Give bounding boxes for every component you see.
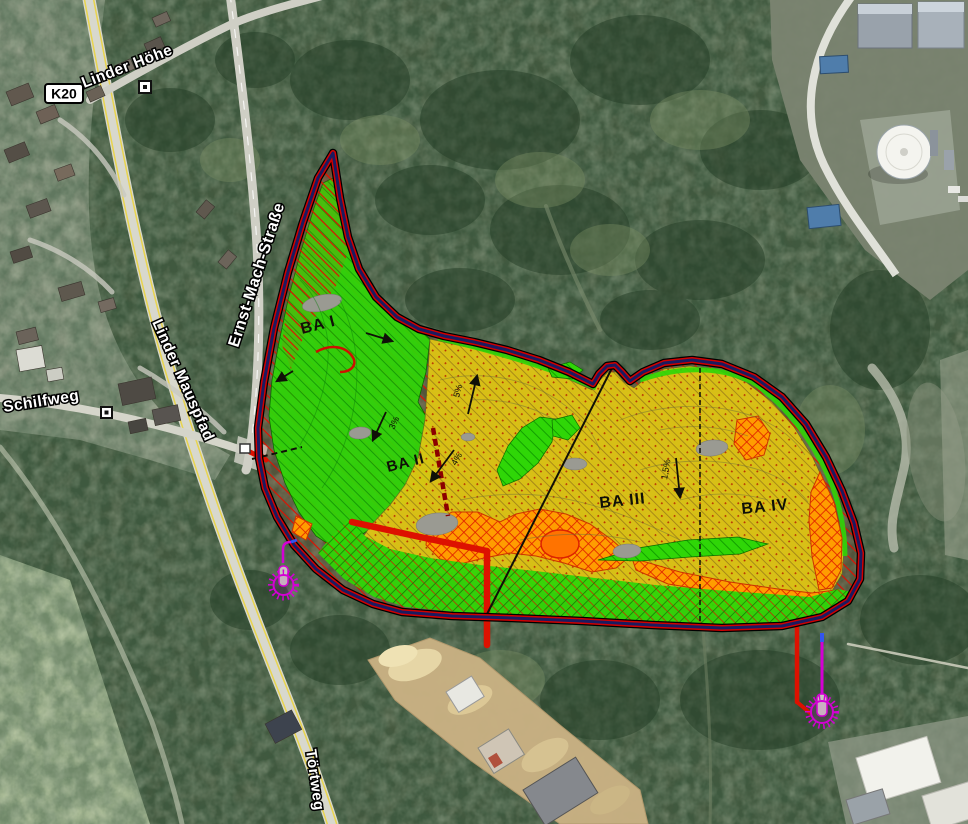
- k20-road-badge: K20: [45, 84, 83, 103]
- aerial-plan-svg: 5% 4% 3% 1,5%: [0, 0, 968, 824]
- k20-badge-text: K20: [51, 86, 77, 102]
- map-viewport[interactable]: 5% 4% 3% 1,5%: [0, 0, 968, 824]
- blue-roof-building: [820, 55, 849, 73]
- blue-roof-building: [807, 204, 841, 228]
